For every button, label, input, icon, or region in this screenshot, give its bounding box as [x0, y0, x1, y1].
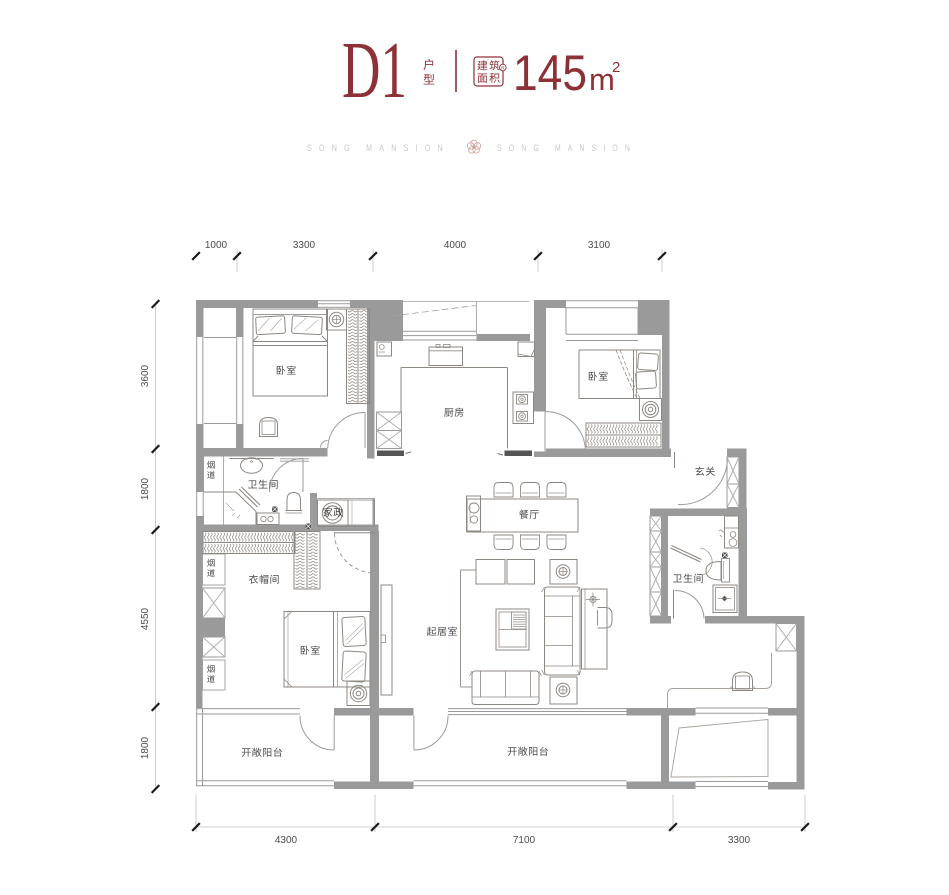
svg-text:4300: 4300 [275, 835, 298, 846]
svg-text:1000: 1000 [205, 240, 228, 251]
svg-text:m: m [589, 62, 615, 97]
svg-text:SONG MANSION: SONG MANSION [497, 143, 637, 153]
svg-text:1800: 1800 [140, 736, 151, 759]
svg-text:4000: 4000 [444, 240, 467, 251]
svg-text:3100: 3100 [588, 240, 611, 251]
svg-text:3600: 3600 [140, 364, 151, 387]
svg-text:7100: 7100 [513, 835, 536, 846]
svg-text:1800: 1800 [140, 477, 151, 500]
svg-text:D1: D1 [342, 27, 407, 115]
svg-text:SONG MANSION: SONG MANSION [307, 143, 450, 153]
svg-text:4550: 4550 [140, 607, 151, 630]
svg-text:2: 2 [612, 59, 620, 76]
svg-text:R: R [501, 66, 505, 72]
svg-text:145: 145 [513, 45, 587, 101]
svg-text:3300: 3300 [293, 240, 316, 251]
svg-text:3300: 3300 [728, 835, 751, 846]
